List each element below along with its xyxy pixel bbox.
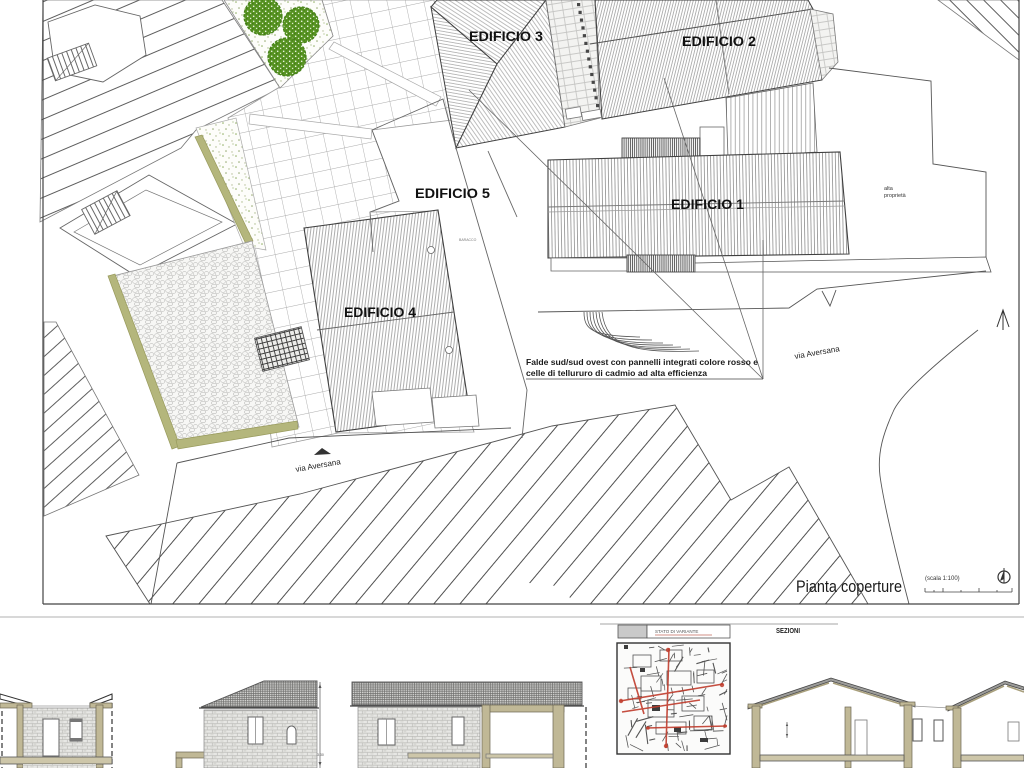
svg-text:3.30: 3.30 [317,753,324,757]
svg-text:STATO DI VARIANTE: STATO DI VARIANTE [655,629,698,634]
svg-text:SEZIONI: SEZIONI [776,628,800,635]
svg-text:(scala 1:100): (scala 1:100) [925,576,960,582]
svg-text:EDIFICIO 1: EDIFICIO 1 [671,196,744,212]
svg-text:proprietà: proprietà [884,193,907,199]
svg-text:Pianta coperture: Pianta coperture [796,577,902,596]
svg-text:alta: alta [884,186,894,192]
svg-text:EDIFICIO 4: EDIFICIO 4 [344,304,416,320]
svg-text:EDIFICIO 5: EDIFICIO 5 [415,185,490,201]
svg-text:EDIFICIO 2: EDIFICIO 2 [682,33,756,49]
svg-text:EDIFICIO 3: EDIFICIO 3 [469,28,543,44]
svg-text:celle di tellururo di cadmio: celle di tellururo di cadmio ad alta eff… [526,369,707,378]
svg-text:BARACCO: BARACCO [459,238,477,242]
svg-text:Falde sud/sud ovest con panne: Falde sud/sud ovest con pannelli integra… [526,358,758,367]
